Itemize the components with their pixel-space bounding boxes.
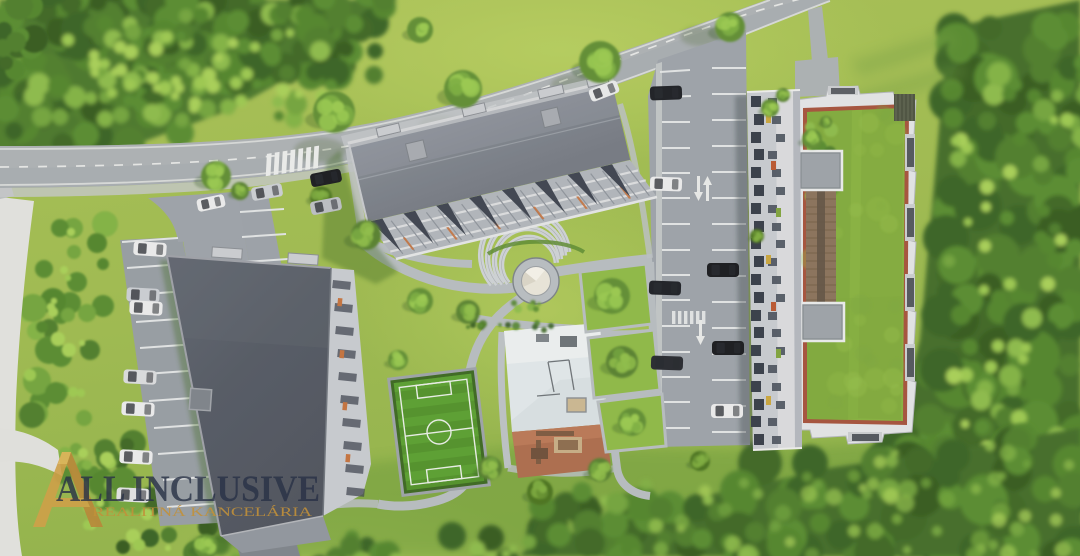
svg-text:REALITNÁ KANCELÁRIA: REALITNÁ KANCELÁRIA [92,504,313,519]
